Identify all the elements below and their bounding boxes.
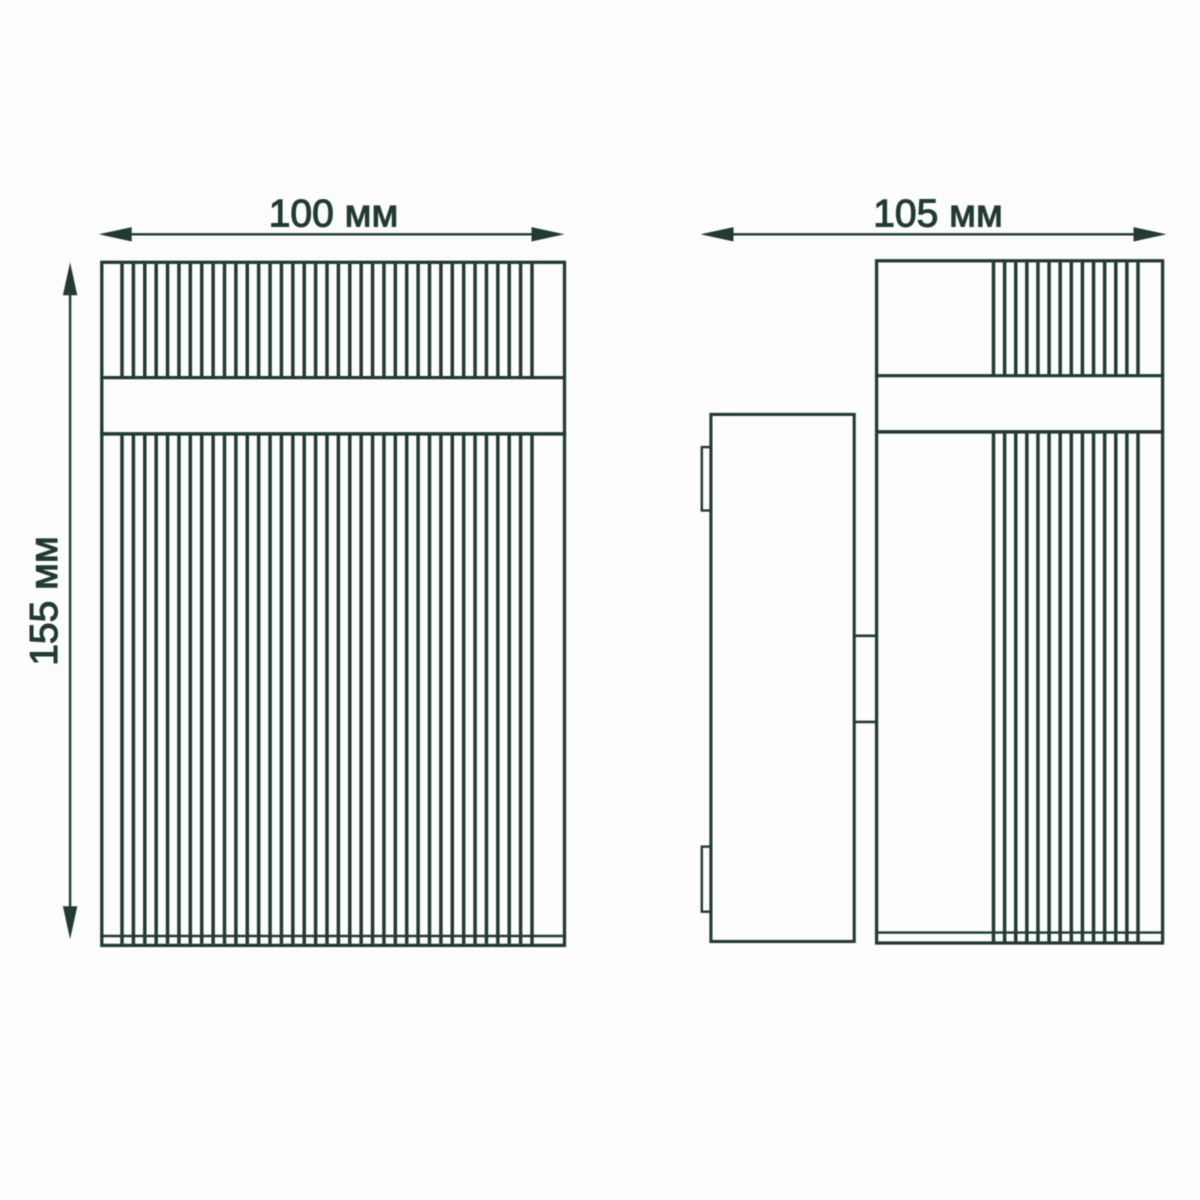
svg-text:100 мм: 100 мм <box>269 193 399 236</box>
svg-text:155 мм: 155 мм <box>23 536 66 666</box>
svg-text:105 мм: 105 мм <box>873 193 1003 236</box>
